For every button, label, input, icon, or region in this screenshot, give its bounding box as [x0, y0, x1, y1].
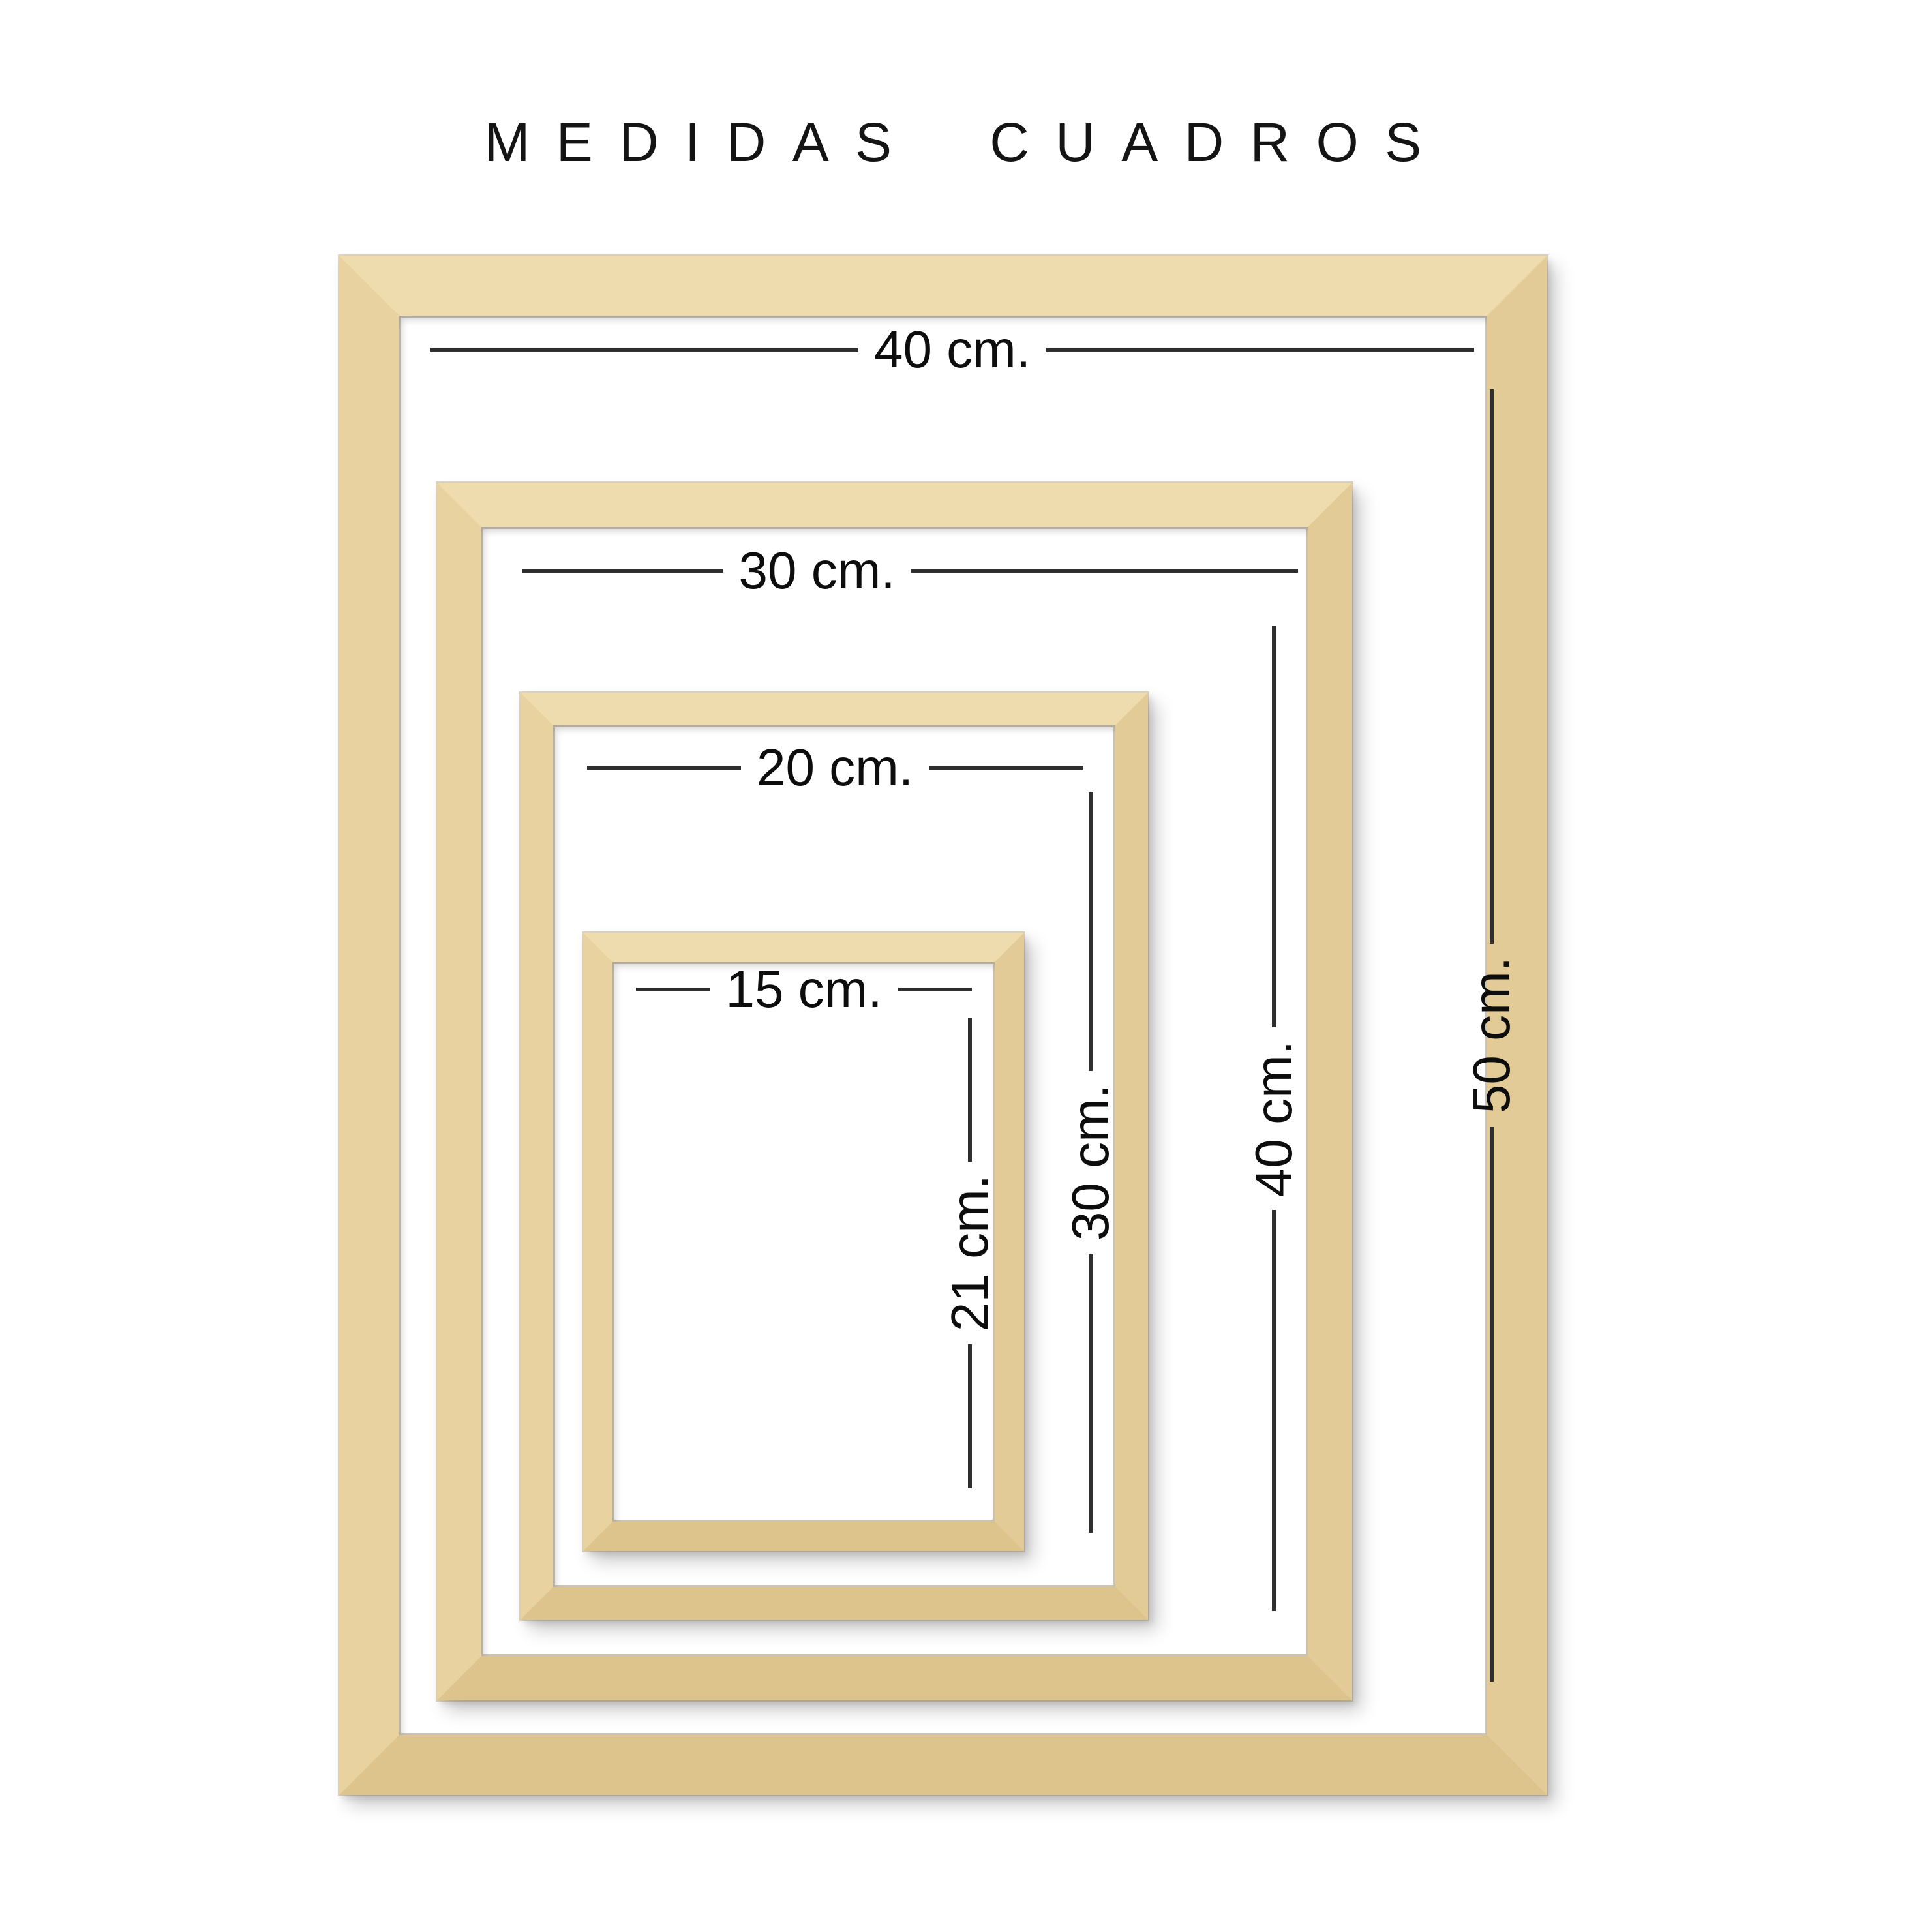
height-label-40cm: 40 cm.	[1248, 1040, 1300, 1197]
dimension-line	[636, 988, 710, 991]
dimension-line	[1272, 626, 1276, 1027]
dimension-line	[1490, 389, 1494, 944]
dimension-line	[911, 569, 1298, 573]
height-label-30cm: 30 cm.	[1064, 1084, 1117, 1241]
height-dimension-50cm: 50 cm.	[1460, 389, 1523, 1682]
height-label-50cm: 50 cm.	[1466, 957, 1518, 1113]
frame-sizes-diagram: MEDIDAS CUADROS 40 cm. 30 cm. 20 cm. 15 …	[0, 0, 1932, 1932]
width-label-15cm: 15 cm.	[725, 963, 882, 1016]
dimension-line	[522, 569, 723, 573]
dimension-line	[929, 766, 1083, 770]
dimension-line	[1272, 1210, 1276, 1611]
width-dimension-40cm: 40 cm.	[430, 318, 1474, 381]
dimension-line	[1089, 1254, 1093, 1533]
height-dimension-30cm: 30 cm.	[1059, 792, 1122, 1533]
dimension-line	[587, 766, 741, 770]
dimension-line	[1089, 792, 1093, 1071]
dimension-line	[1046, 348, 1474, 352]
height-dimension-40cm: 40 cm.	[1243, 626, 1305, 1611]
dimension-line	[430, 348, 858, 352]
width-label-20cm: 20 cm.	[757, 742, 913, 794]
height-label-21cm: 21 cm.	[944, 1175, 996, 1331]
dimension-line	[898, 988, 972, 991]
height-dimension-21cm: 21 cm.	[939, 1018, 1001, 1488]
dimension-line	[1490, 1127, 1494, 1682]
dimension-line	[968, 1344, 972, 1488]
width-label-30cm: 30 cm.	[739, 545, 896, 597]
dimension-line	[968, 1018, 972, 1162]
width-dimension-15cm: 15 cm.	[636, 958, 972, 1021]
width-dimension-30cm: 30 cm.	[522, 539, 1298, 602]
width-dimension-20cm: 20 cm.	[587, 736, 1083, 799]
page-title: MEDIDAS CUADROS	[0, 111, 1932, 174]
width-label-40cm: 40 cm.	[874, 324, 1031, 376]
